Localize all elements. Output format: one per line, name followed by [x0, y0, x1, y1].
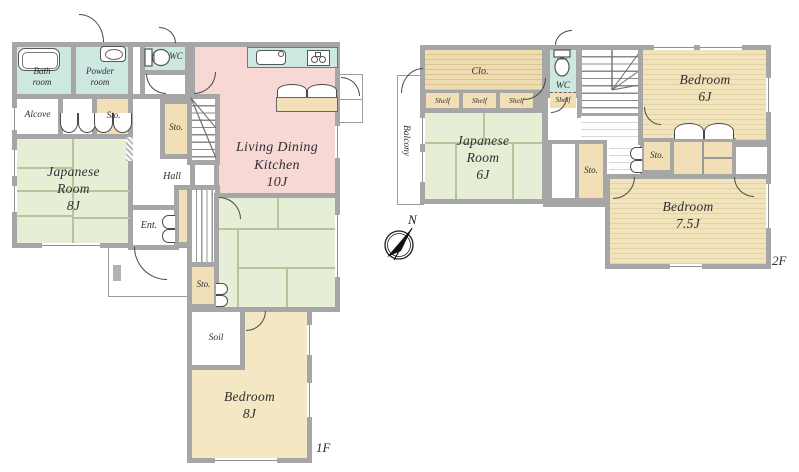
room-label-bedroom-7-5j: Bedroom7.5J — [628, 199, 748, 233]
window — [335, 215, 340, 277]
room-label-ldk: Living DiningKitchen10J — [217, 139, 337, 192]
folding-door-arc — [60, 113, 78, 133]
tatami-line — [286, 267, 288, 307]
window — [654, 45, 694, 50]
room-label-wc: WC — [546, 81, 580, 93]
kitchen-cabinet — [276, 97, 338, 112]
shelf-label: Shelf — [426, 96, 459, 105]
burner-icon — [319, 56, 326, 63]
room-label-powder: Powderroom — [71, 66, 129, 89]
door-arc — [79, 14, 104, 42]
meter-hatch — [126, 137, 133, 161]
tatami-line — [73, 217, 130, 219]
room-label-wc: WC — [163, 51, 189, 62]
tatami-line — [277, 198, 279, 228]
closet-grid-line — [702, 157, 734, 159]
north-label: N — [407, 212, 418, 227]
window — [307, 325, 312, 355]
stairwell-open — [581, 116, 641, 142]
window — [766, 78, 771, 112]
folding-door-arc — [307, 84, 337, 97]
room-label-bath: Bathroom — [14, 66, 70, 89]
room-label-sto: Sto. — [575, 165, 607, 176]
floor-plan: Bathroom Powderroom WC Alcove Sto. Sto. … — [0, 0, 799, 472]
room-label-soil: Soil — [190, 333, 242, 345]
window — [670, 264, 702, 269]
faucet-icon — [278, 51, 284, 57]
window — [215, 458, 277, 463]
folding-door-arc — [277, 84, 307, 97]
tatami-line — [17, 215, 73, 217]
room-label-sto: Sto. — [187, 279, 220, 290]
room-label-bedroom-6j: Bedroom6J — [645, 72, 765, 106]
room-label-japanese-6j: JapaneseRoom6J — [426, 133, 540, 184]
window — [700, 45, 742, 50]
window — [42, 243, 100, 248]
burner-icon — [311, 56, 318, 63]
room-label-ent: Ent. — [128, 220, 170, 233]
door-arc — [159, 27, 176, 43]
step-outline — [338, 99, 363, 123]
window — [307, 383, 312, 417]
window — [420, 118, 425, 144]
room-label-sto: Sto. — [92, 110, 135, 121]
window — [420, 152, 425, 182]
door-arc — [555, 30, 572, 45]
room-label-sto: Sto. — [160, 122, 192, 133]
room-label-bedroom-8j: Bedroom8J — [192, 389, 307, 423]
shelf-label: Shelf — [500, 96, 533, 105]
stairs-winder — [577, 45, 643, 118]
folding-door-arc — [674, 123, 704, 139]
room-label-clo: Clo. — [430, 66, 530, 79]
floor1-label: 1F — [316, 440, 330, 456]
burner-icon — [315, 52, 321, 57]
shelf-label: Shelf — [546, 95, 580, 104]
toilet-icon — [551, 49, 573, 79]
sink-bowl — [105, 49, 123, 60]
room-label-japanese-8j: JapaneseRoom8J — [17, 164, 130, 215]
folding-door-arc — [704, 123, 734, 139]
room-label-balcony: Balcony — [399, 105, 411, 177]
window — [766, 184, 771, 228]
folding-door-arc — [630, 160, 642, 173]
shelf-label: Shelf — [463, 96, 496, 105]
room-label-alcove: Alcove — [13, 110, 62, 122]
folding-door-arc — [216, 295, 228, 307]
room-label-sto: Sto. — [640, 150, 674, 161]
compass-icon: N — [380, 210, 426, 268]
door-arc — [401, 68, 423, 93]
porch-post — [113, 265, 121, 281]
room-label-hall: Hall — [150, 171, 194, 184]
floor2-label: 2F — [772, 253, 786, 269]
